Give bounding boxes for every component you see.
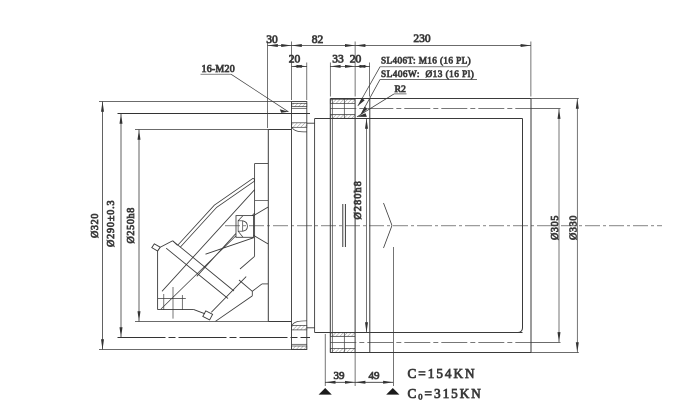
svg-text:SL406T: M16 (16 PL): SL406T: M16 (16 PL): [381, 55, 471, 65]
svg-text:Ø320: Ø320: [90, 213, 101, 238]
svg-text:20: 20: [289, 53, 301, 65]
svg-text:SL406W: Ø13 (16 Pl): SL406W: Ø13 (16 Pl): [381, 69, 474, 79]
svg-text:Ø330: Ø330: [568, 215, 579, 240]
svg-text:16-M20: 16-M20: [202, 64, 235, 75]
svg-text:33: 33: [332, 53, 344, 65]
svg-text:Ø305: Ø305: [550, 215, 561, 240]
svg-text:30: 30: [266, 34, 278, 46]
svg-text:20: 20: [350, 53, 362, 65]
svg-text:R2: R2: [395, 84, 407, 95]
svg-text:39: 39: [334, 370, 346, 382]
svg-text:C0=315KN: C0=315KN: [408, 386, 483, 402]
svg-text:Ø280h8: Ø280h8: [353, 180, 364, 219]
svg-text:82: 82: [312, 34, 324, 46]
svg-text:49: 49: [369, 370, 381, 382]
svg-text:Ø250h8: Ø250h8: [126, 207, 137, 243]
svg-text:230: 230: [413, 33, 431, 45]
svg-text:C=154KN: C=154KN: [408, 366, 477, 381]
svg-text:Ø290±0.3: Ø290±0.3: [106, 200, 117, 247]
